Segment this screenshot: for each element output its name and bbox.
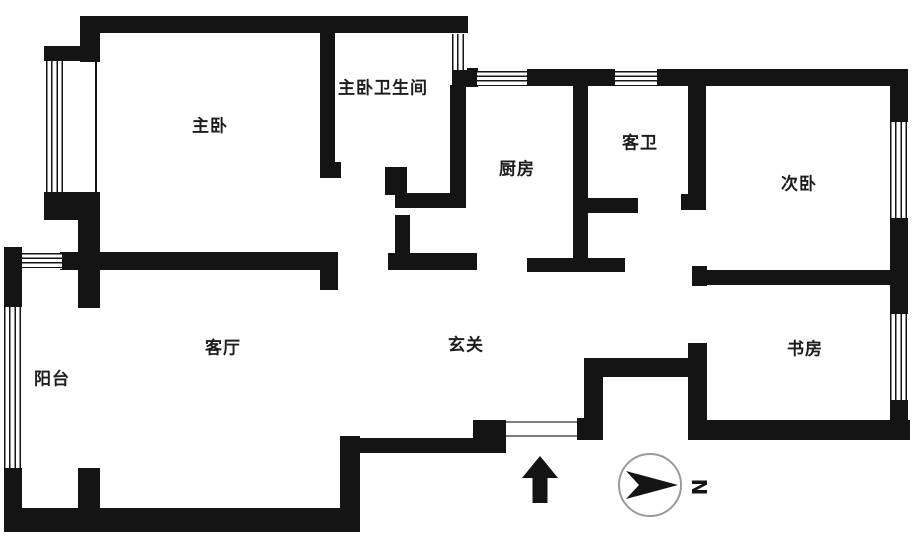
room-labels-layer: 主卧主卧卫生间厨房客卫次卧客厅玄关书房阳台: [0, 0, 918, 541]
compass-north-arrow-icon: [626, 470, 678, 500]
compass-north-label: N: [689, 479, 709, 496]
entry-door: [506, 421, 577, 437]
room-label-study: 书房: [787, 335, 823, 360]
room-label-living-room: 客厅: [205, 334, 241, 359]
room-label-master-bathroom: 主卧卫生间: [338, 74, 428, 99]
room-label-entrance-hall: 玄关: [448, 331, 484, 356]
floorplan: 主卧主卧卫生间厨房客卫次卧客厅玄关书房阳台 N: [0, 0, 918, 541]
room-label-kitchen: 厨房: [499, 155, 535, 180]
room-label-second-bedroom: 次卧: [781, 170, 817, 195]
entry-direction-arrow-icon: [522, 456, 558, 503]
room-label-guest-bathroom: 客卫: [622, 129, 658, 154]
room-label-balcony: 阳台: [34, 365, 70, 390]
room-label-master-bedroom: 主卧: [192, 112, 228, 137]
